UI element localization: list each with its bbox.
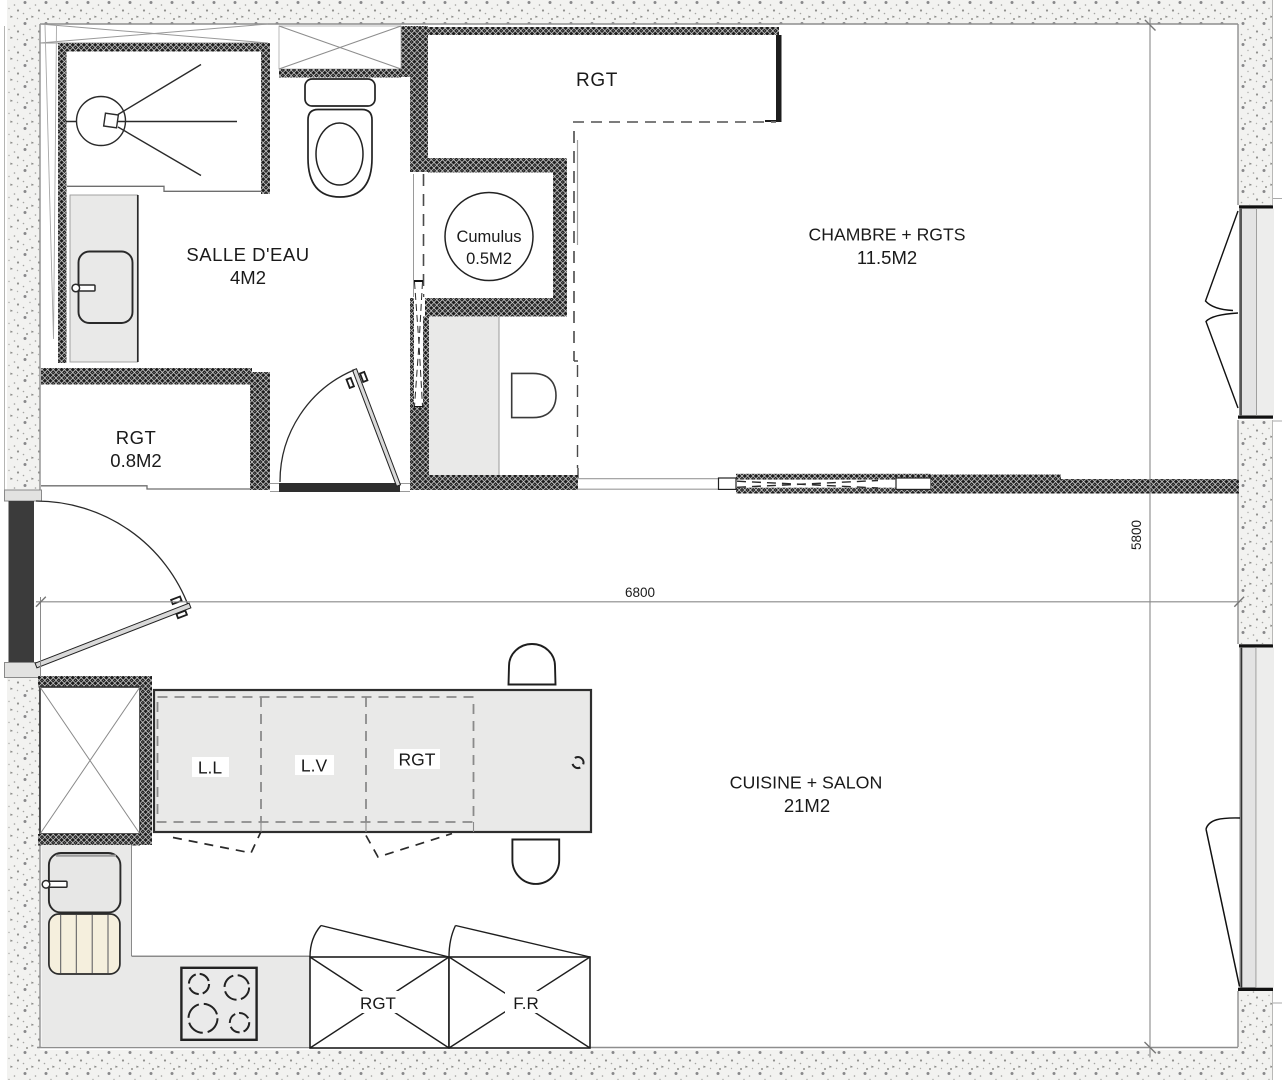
svg-text:21M2: 21M2 xyxy=(784,795,830,816)
svg-text:RGT: RGT xyxy=(399,750,436,770)
svg-text:Cumulus: Cumulus xyxy=(456,228,521,246)
svg-text:CHAMBRE + RGTS: CHAMBRE + RGTS xyxy=(809,225,966,245)
svg-text:4M2: 4M2 xyxy=(230,267,266,288)
svg-text:L.L: L.L xyxy=(198,758,223,778)
svg-text:5800: 5800 xyxy=(1129,520,1144,550)
svg-text:0.8M2: 0.8M2 xyxy=(110,450,161,471)
svg-text:RGT: RGT xyxy=(360,994,396,1013)
svg-text:11.5M2: 11.5M2 xyxy=(857,247,917,268)
svg-text:RGT: RGT xyxy=(576,70,618,91)
svg-text:RGT: RGT xyxy=(116,427,157,448)
svg-text:F.R: F.R xyxy=(513,994,539,1013)
svg-text:SALLE D'EAU: SALLE D'EAU xyxy=(186,244,309,265)
svg-text:CUISINE + SALON: CUISINE + SALON xyxy=(730,773,883,793)
svg-text:6800: 6800 xyxy=(625,585,655,600)
svg-text:0.5M2: 0.5M2 xyxy=(466,250,512,268)
svg-text:L.V: L.V xyxy=(301,756,328,776)
